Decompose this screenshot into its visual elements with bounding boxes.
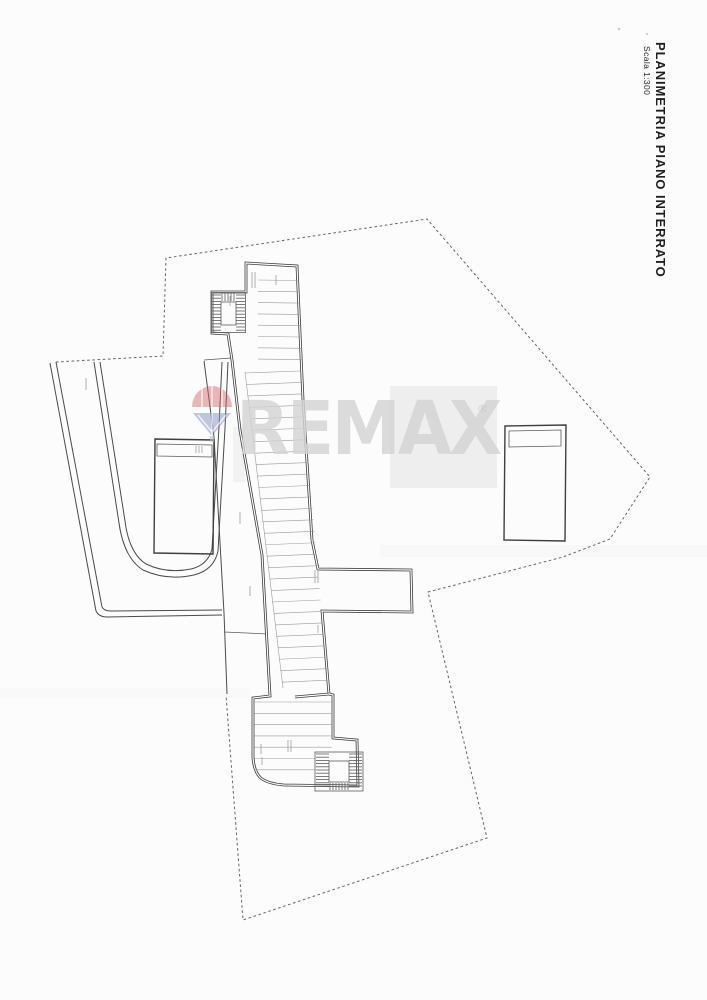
garage-walls: [212, 263, 412, 786]
scanned-floor-plan-page: PLANIMETRIA PIANO INTERRATO Scala 1:300: [0, 0, 707, 1000]
access-ramp: [50, 358, 268, 694]
floor-plan-svg: [0, 0, 707, 1000]
detached-structure: [504, 425, 566, 541]
parking-stalls-upper-room: [258, 280, 302, 360]
scan-artifacts: [0, 28, 707, 698]
parking-stalls-lower-block: [255, 702, 333, 770]
drive-aisle-line: [245, 372, 283, 688]
staircase-top: [212, 293, 246, 333]
cellar-room: [154, 439, 214, 554]
